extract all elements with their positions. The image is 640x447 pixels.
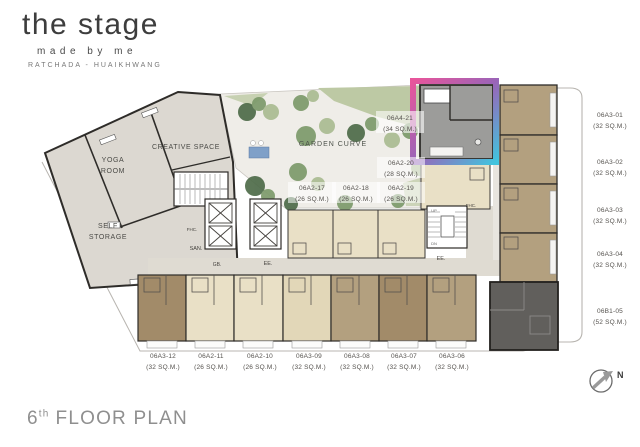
label-06A2-11: 06A2-11 [198,353,224,360]
unit-niche [424,89,450,103]
svg-text:(32 SQ.M.): (32 SQ.M.) [593,262,627,269]
balcony [436,341,466,348]
label-06A3-06: 06A3-06 [439,353,465,360]
gb-label: GB. [213,262,222,268]
label-06A2-10: 06A2-10 [247,353,273,360]
unit-06A3-04 [500,233,557,282]
right-stair-core: UP DN [427,206,467,248]
label-06A3-02: 06A3-02 [597,159,623,166]
brand-tagline: made by me [37,46,162,57]
unit-06A2-10 [234,275,283,341]
label-06A3-12: 06A3-12 [150,353,176,360]
north-arrow-icon [593,377,605,388]
bottom-row-units [138,275,476,348]
svg-text:(32 SQ.M.): (32 SQ.M.) [593,218,627,225]
unit-06A4-21 [420,85,493,159]
floor-plan-page: the stage made by me RATCHADA - HUAIKHWA… [0,0,640,447]
svg-text:(26 SQ.M.): (26 SQ.M.) [243,364,277,371]
unit-06A2-18 [333,210,378,258]
svg-text:(32 SQ.M.): (32 SQ.M.) [593,170,627,177]
brand-logo: the stage [22,8,162,42]
creative-space-label: CREATIVE SPACE [152,144,220,151]
unit-tag-area: (28 SQ.M.) [384,171,418,178]
svg-text:(32 SQ.M.): (32 SQ.M.) [387,364,421,371]
unit-balcony [430,147,463,156]
unit-tag-06A2-20: 06A2-20 [388,160,414,167]
fhc-label: FHC. [187,227,198,232]
unit-tag-06A2-17: 06A2-17 [299,185,325,192]
yoga-room-label: YOGA [102,157,125,164]
bottom-unit-labels: 06A3-12 (32 SQ.M.) 06A2-11 (26 SQ.M.) 06… [146,353,469,371]
balcony [550,142,556,176]
svg-text:(32 SQ.M.): (32 SQ.M.) [593,123,627,130]
ee-label: EE. [264,261,273,267]
brand-location: RATCHADA - HUAIKHWANG [28,62,162,69]
unit-tag-06A2-19: 06A2-19 [388,185,414,192]
self-storage-label: SELF [98,223,118,230]
label-06A3-07: 06A3-07 [391,353,417,360]
right-column-units [490,85,558,350]
floor-title-text: FLOOR PLAN [56,408,188,429]
brand-block: the stage made by me RATCHADA - HUAIKHWA… [22,8,162,69]
floor-suffix: th [39,409,50,420]
garden-water-feature [249,147,269,158]
balcony [340,341,370,348]
unit-tag-06A2-18: 06A2-18 [343,185,369,192]
label-06A3-09: 06A3-09 [296,353,322,360]
san-label: SAN. [190,246,203,252]
page-title: 6thFLOOR PLAN [27,408,188,430]
north-indicator: N [590,370,624,392]
fixture [475,139,481,145]
label-06A3-04: 06A3-04 [597,251,623,258]
floor-number: 6 [27,408,39,429]
unit-06A2-11 [186,275,234,341]
self-storage-label: STORAGE [89,234,127,241]
svg-text:(52 SQ.M.): (52 SQ.M.) [593,319,627,326]
label-06B1-05: 06B1-05 [597,308,623,315]
garden-seat [251,141,256,146]
balcony [195,341,225,348]
label-06A3-03: 06A3-03 [597,207,623,214]
unit-06A3-03 [500,184,557,233]
unit-tag-06A4-21: 06A4-21 [387,115,413,122]
svg-text:(26 SQ.M.): (26 SQ.M.) [194,364,228,371]
svg-text:(32 SQ.M.): (32 SQ.M.) [340,364,374,371]
unit-tag-area: (26 SQ.M.) [295,196,329,203]
balcony [147,341,177,348]
unit-06A3-06 [427,275,476,341]
svg-text:(32 SQ.M.): (32 SQ.M.) [292,364,326,371]
unit-tag-area: (26 SQ.M.) [339,196,373,203]
unit-06A2-17 [288,210,333,258]
yoga-room-label: ROOM [101,168,125,175]
right-unit-labels: 06A3-01 (32 SQ.M.) 06A3-02 (32 SQ.M.) 06… [593,112,627,326]
fhc-label: FHC. [466,203,477,208]
unit-06A3-01 [500,85,557,135]
balcony [550,93,556,127]
label-06A3-08: 06A3-08 [344,353,370,360]
unit-06A3-09 [283,275,331,341]
balcony [243,341,273,348]
unit-tag-area: (34 SQ.M.) [383,126,417,133]
unit-06A2-20 [421,163,490,209]
svg-text:(32 SQ.M.): (32 SQ.M.) [435,364,469,371]
garden-curve-label: GARDEN CURVE [299,141,367,148]
unit-06A3-12 [138,275,186,341]
unit-06A3-08 [331,275,379,341]
balcony [550,191,556,225]
label-06A3-01: 06A3-01 [597,112,623,119]
unit-tag-area: (26 SQ.M.) [384,196,418,203]
garden-seat [259,141,264,146]
elevator-core [250,199,281,249]
balcony [388,341,418,348]
dn-label: DN [431,241,437,246]
elevator-core [205,199,236,249]
balcony [550,240,556,274]
ee-label: EE. [437,256,446,262]
unit-06A3-02 [500,135,557,184]
balcony [292,341,322,348]
svg-text:(32 SQ.M.): (32 SQ.M.) [146,364,180,371]
unit-06A2-19 [378,210,425,258]
up-label: UP [431,208,437,213]
unit-06A3-07 [379,275,427,341]
north-label: N [617,370,624,380]
